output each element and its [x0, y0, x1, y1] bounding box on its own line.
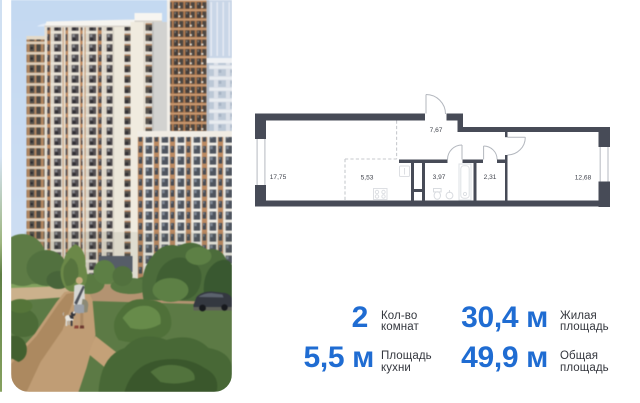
- svg-text:3,97: 3,97: [433, 174, 446, 181]
- svg-text:2,31: 2,31: [484, 174, 497, 181]
- svg-text:12,68: 12,68: [575, 175, 592, 182]
- svg-text:17,75: 17,75: [270, 174, 287, 181]
- svg-text:5,53: 5,53: [361, 175, 374, 182]
- svg-text:7,67: 7,67: [430, 127, 443, 134]
